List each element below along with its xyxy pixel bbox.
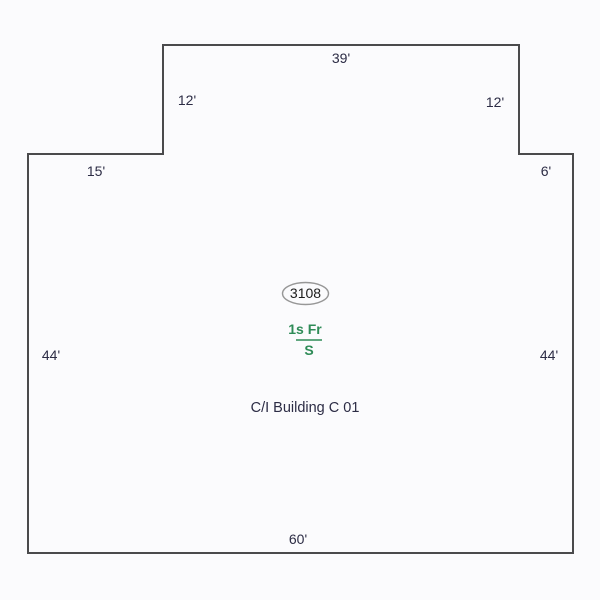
- dimension-upper-left-side: 12': [178, 92, 196, 108]
- dimension-left-side: 44': [42, 347, 60, 363]
- dimension-right-side: 44': [540, 347, 558, 363]
- sketch-canvas: 39' 12' 12' 15' 6' 44' 44' 60' 3108 1s F…: [0, 0, 600, 600]
- area-tag-label: 3108: [290, 285, 321, 301]
- dimension-left-shoulder: 15': [87, 163, 105, 179]
- story-label-denominator: S: [304, 342, 313, 358]
- story-label-numerator: 1s Fr: [288, 321, 322, 337]
- dimension-top: 39': [332, 50, 350, 66]
- building-name-label: C/I Building C 01: [251, 400, 360, 416]
- dimension-right-shoulder: 6': [541, 163, 551, 179]
- dimension-bottom: 60': [289, 531, 307, 547]
- dimension-upper-right-side: 12': [486, 94, 504, 110]
- building-sketch: 39' 12' 12' 15' 6' 44' 44' 60' 3108 1s F…: [0, 0, 600, 600]
